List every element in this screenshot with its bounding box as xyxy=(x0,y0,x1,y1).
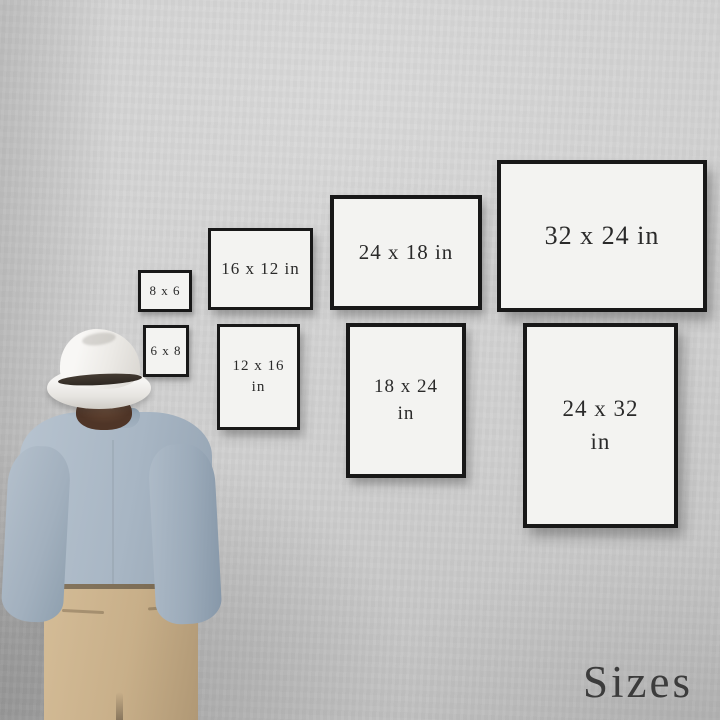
person-figure xyxy=(0,0,720,720)
person-arm-right xyxy=(147,442,222,625)
sizes-watermark: Sizes xyxy=(583,656,693,708)
person-arm-left xyxy=(0,444,71,623)
pants-leg-gap xyxy=(116,692,123,720)
shirt-back-seam xyxy=(112,440,114,590)
mockup-scene: 8 x 6 16 x 12 in 24 x 18 in 32 x 24 in 6… xyxy=(0,0,720,720)
